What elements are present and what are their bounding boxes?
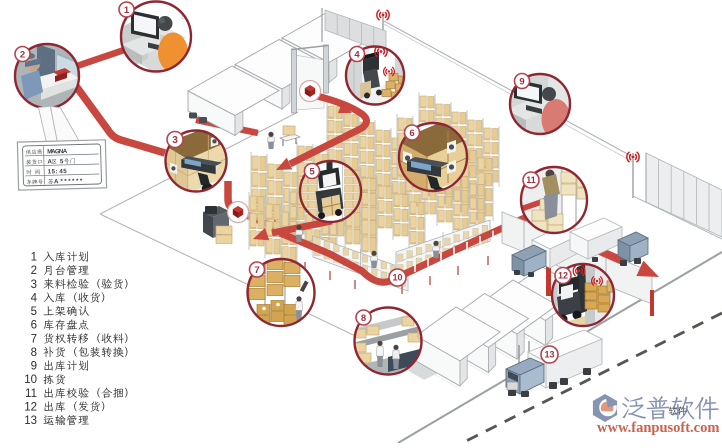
svg-text:A: A (47, 158, 52, 165)
svg-text:A: A (54, 178, 59, 185)
svg-text:13: 13 (24, 415, 37, 427)
svg-text:2: 2 (20, 49, 25, 60)
svg-text:5: 5 (31, 306, 37, 318)
svg-text:4: 4 (31, 292, 38, 304)
svg-text:10: 10 (392, 273, 402, 283)
svg-text:12: 12 (558, 271, 568, 281)
svg-text:11: 11 (25, 388, 37, 400)
svg-text:11: 11 (526, 175, 536, 185)
svg-text:7: 7 (254, 265, 259, 276)
svg-text:8: 8 (31, 347, 37, 359)
svg-text:10: 10 (24, 374, 37, 386)
svg-text:2: 2 (31, 265, 37, 277)
svg-text:4: 4 (354, 49, 360, 60)
svg-text:www.fanpusoft.com: www.fanpusoft.com (597, 420, 719, 436)
svg-text:A: A (63, 148, 68, 155)
svg-text:13: 13 (544, 350, 554, 360)
svg-text:5: 5 (309, 166, 315, 177)
svg-text:3: 3 (172, 135, 178, 146)
svg-text:9: 9 (31, 361, 37, 373)
svg-text::: : (55, 168, 57, 175)
svg-text:6: 6 (409, 128, 414, 139)
svg-text:3: 3 (31, 279, 37, 291)
svg-text:1: 1 (124, 5, 130, 16)
svg-text:1: 1 (31, 252, 37, 264)
svg-text:7: 7 (31, 333, 37, 345)
svg-text:8: 8 (361, 313, 366, 324)
svg-text:6: 6 (31, 320, 37, 332)
svg-text:12: 12 (24, 401, 37, 413)
svg-text:9: 9 (519, 76, 524, 87)
